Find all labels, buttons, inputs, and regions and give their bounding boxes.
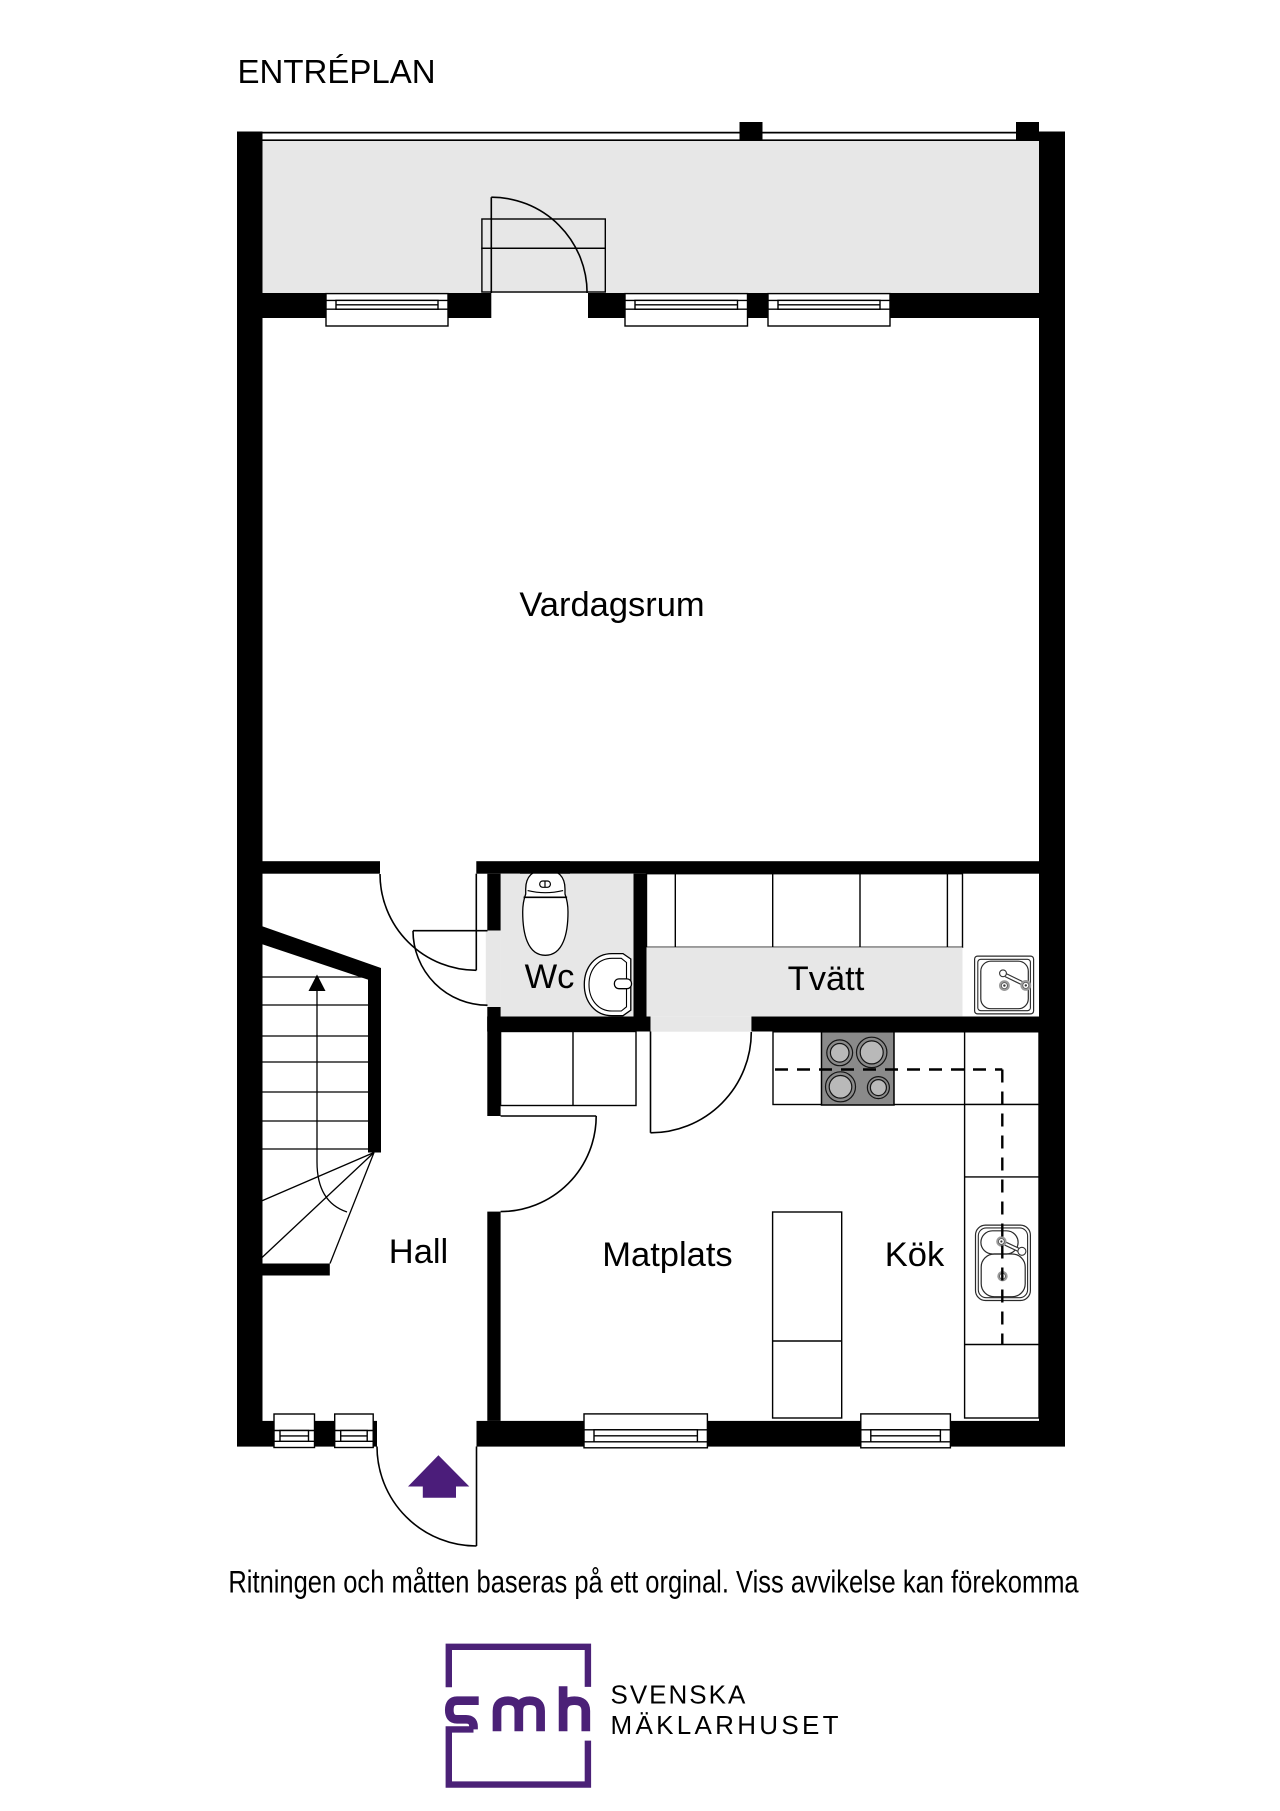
svg-text:Ritningen och måtten baseras p: Ritningen och måtten baseras på ett orgi… bbox=[228, 1565, 1078, 1600]
svg-text:Tvätt: Tvätt bbox=[788, 960, 865, 998]
svg-text:Hall: Hall bbox=[389, 1233, 448, 1271]
svg-text:ENTRÉPLAN: ENTRÉPLAN bbox=[238, 53, 436, 90]
svg-text:Matplats: Matplats bbox=[602, 1236, 732, 1274]
svg-text:Vardagsrum: Vardagsrum bbox=[519, 586, 704, 624]
svg-text:MÄKLARHUSET: MÄKLARHUSET bbox=[611, 1710, 842, 1740]
svg-text:Wc: Wc bbox=[525, 958, 575, 996]
svg-text:SVENSKA: SVENSKA bbox=[611, 1680, 748, 1710]
svg-text:Kök: Kök bbox=[885, 1236, 945, 1274]
